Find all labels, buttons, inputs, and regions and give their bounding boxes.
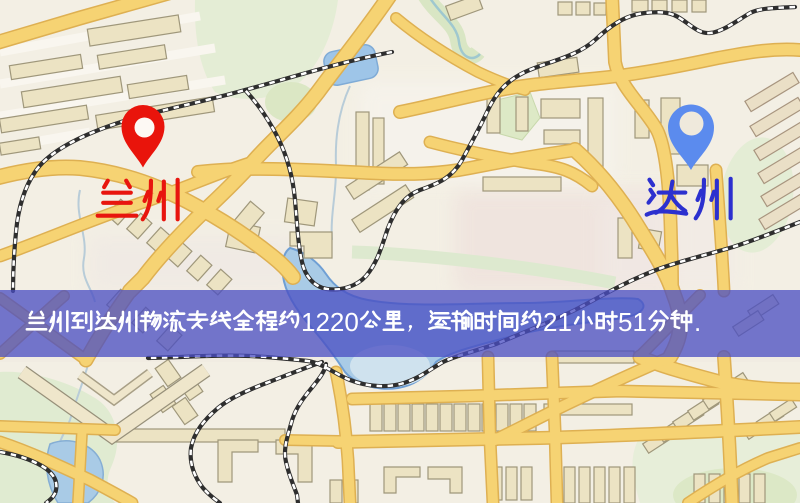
svg-text:.: .: [694, 307, 701, 337]
svg-text:21: 21: [543, 307, 572, 337]
svg-text:1220: 1220: [301, 307, 359, 337]
svg-text:51: 51: [618, 307, 647, 337]
